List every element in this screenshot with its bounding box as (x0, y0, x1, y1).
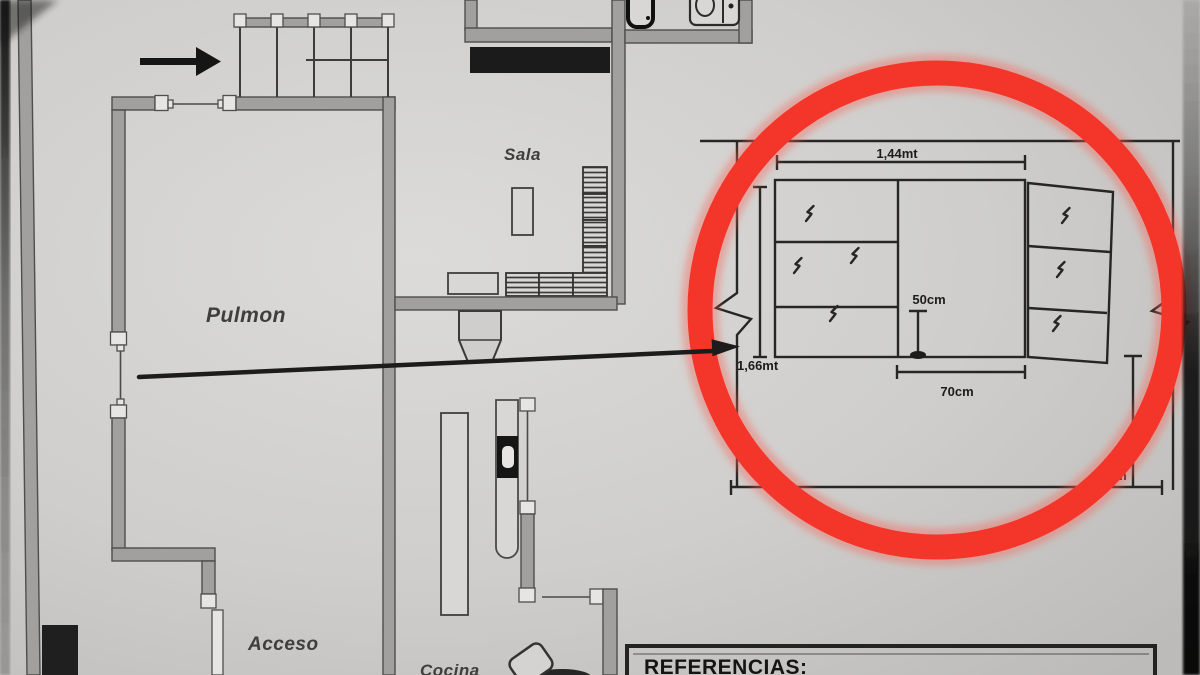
entry-door-leaf (212, 610, 223, 675)
dim-left-height-label: 1,66mt (737, 358, 779, 373)
laundry-sink (459, 311, 501, 362)
dim-top-width-label: 1,44mt (876, 146, 918, 161)
bidet-icon (690, 0, 739, 25)
dark-wall-block (42, 625, 78, 675)
dim-inner-width-label: 70cm (940, 384, 973, 399)
sala-bottom-wall (395, 297, 617, 310)
sala-label: Sala (504, 145, 541, 164)
kitchen-counter (441, 413, 468, 615)
photo-edge-right (1183, 0, 1200, 675)
photo-edge-left (0, 0, 10, 675)
floor-plan-canvas: Pulmon Sala Acceso Cocina 1,44mt (0, 0, 1200, 675)
counter (448, 273, 498, 294)
sala-divider-wall (612, 0, 625, 304)
references-title: REFERENCIAS: (644, 656, 808, 675)
dim-inner-height-label: 50cm (912, 292, 945, 307)
kitchen-duct (496, 400, 518, 558)
sala-table (512, 188, 533, 235)
floor-plan-photo: Pulmon Sala Acceso Cocina 1,44mt (0, 0, 1200, 675)
appliance-door (502, 446, 514, 468)
cocina-label: Cocina (420, 661, 480, 675)
pulmon-label: Pulmon (206, 304, 286, 327)
toilet-icon (628, 0, 653, 27)
acceso-label: Acceso (247, 634, 319, 655)
closet-fill-block (470, 47, 610, 73)
